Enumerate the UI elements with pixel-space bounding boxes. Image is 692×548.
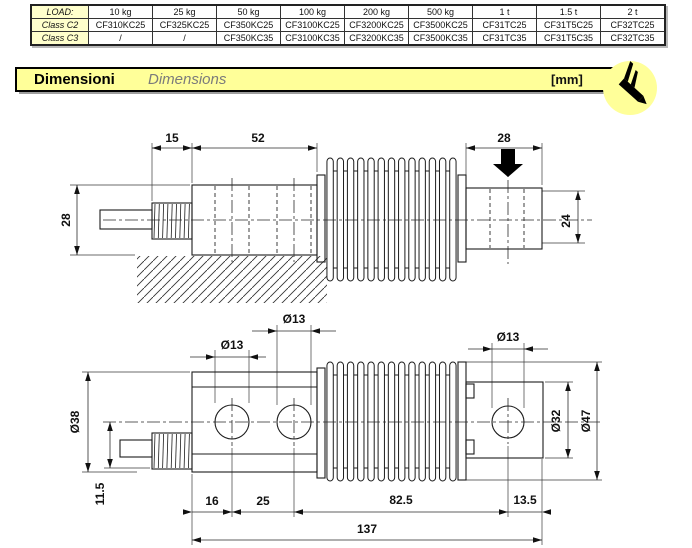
- bellows-finger: [419, 362, 425, 481]
- object-line: [466, 188, 542, 249]
- dim-end-length: 28: [497, 131, 511, 145]
- thread-line: [176, 434, 177, 468]
- bellows-finger: [419, 158, 425, 281]
- bellows-finger: [388, 362, 394, 481]
- arrowhead: [192, 537, 201, 543]
- bellows-finger: [378, 362, 384, 481]
- arrowhead: [565, 382, 571, 391]
- bellows-finger: [358, 362, 364, 481]
- bellows-finger: [347, 158, 353, 281]
- bellows-finger: [368, 158, 374, 281]
- dim-end-height: 24: [559, 214, 573, 228]
- dim-seg-13-5: 13.5: [513, 493, 537, 507]
- object-line: [317, 368, 325, 478]
- bellows-finger: [439, 362, 445, 481]
- bellows-finger: [327, 362, 333, 481]
- dim-cable-offset: 11.5: [93, 482, 107, 505]
- bellows: [327, 158, 456, 481]
- bellows-finger: [388, 158, 394, 281]
- bellows-finger: [409, 158, 415, 281]
- object-line: [317, 175, 325, 262]
- thread-line: [171, 434, 172, 468]
- dim-beam-length: 52: [251, 131, 265, 145]
- arrowhead: [74, 246, 80, 255]
- load-direction-arrow: [493, 149, 523, 177]
- arrowhead: [542, 509, 551, 515]
- dim-seg-82-5: 82.5: [389, 493, 413, 507]
- thread-line: [176, 204, 177, 238]
- dim-beam-height: 28: [59, 213, 73, 227]
- thread-line: [158, 204, 159, 238]
- arrowhead: [466, 145, 475, 151]
- arrowhead: [533, 145, 542, 151]
- bellows-finger: [358, 158, 364, 281]
- arrowhead: [294, 509, 303, 515]
- object-line: [100, 210, 152, 229]
- dim-total-length: 137: [357, 522, 377, 536]
- mounting-surface-hatch: [137, 256, 327, 303]
- thread-line: [158, 434, 159, 468]
- dim-hole2-diameter: Ø13: [283, 312, 306, 326]
- bellows-finger: [450, 158, 456, 281]
- arrowhead: [107, 459, 113, 468]
- arrowhead: [308, 145, 317, 151]
- bellows-finger: [450, 362, 456, 481]
- dim-end-hole-diameter: Ø13: [497, 330, 520, 344]
- arrowhead: [192, 145, 201, 151]
- thread-line: [163, 434, 164, 468]
- dim-body-width: Ø38: [68, 410, 82, 433]
- bellows-finger: [327, 158, 333, 281]
- bellows-finger: [337, 362, 343, 481]
- arrowhead: [183, 145, 192, 151]
- thread-line: [184, 204, 185, 238]
- bellows-finger: [399, 362, 405, 481]
- extension-lines: [70, 143, 602, 545]
- dim-seg-16: 16: [205, 494, 219, 508]
- arrowhead: [183, 509, 192, 515]
- thread-line: [171, 204, 172, 238]
- dim-seg-25: 25: [256, 494, 270, 508]
- arrowhead: [268, 328, 277, 334]
- object-outlines: [100, 175, 543, 480]
- thread-line: [163, 204, 164, 238]
- dim-boss-diameter: Ø32: [549, 409, 563, 432]
- arrowhead: [232, 509, 241, 515]
- arrowhead: [311, 328, 320, 334]
- object-line: [458, 175, 466, 262]
- object-line: [466, 440, 474, 454]
- arrowhead: [107, 422, 113, 431]
- section-title-english: Dimensions: [148, 71, 226, 88]
- thread-line: [180, 204, 181, 238]
- arrowhead: [575, 191, 581, 200]
- arrowhead: [483, 346, 492, 352]
- arrowhead: [85, 372, 91, 381]
- arrowhead: [74, 185, 80, 194]
- dim-gland-length: 15: [165, 131, 179, 145]
- bellows-finger: [409, 362, 415, 481]
- bellows-finger: [368, 362, 374, 481]
- thread-line: [188, 434, 189, 468]
- bellows-finger: [347, 362, 353, 481]
- thread-line: [167, 204, 168, 238]
- dim-hole1-diameter: Ø13: [221, 338, 244, 352]
- bellows-finger: [439, 158, 445, 281]
- thread-line: [154, 204, 155, 238]
- arrowhead: [223, 509, 232, 515]
- arrowhead: [533, 537, 542, 543]
- arrowhead: [206, 354, 215, 360]
- bellows-finger: [429, 158, 435, 281]
- section-title-italian: Dimensioni: [34, 71, 115, 88]
- thread-line: [184, 434, 185, 468]
- arrowhead: [524, 346, 533, 352]
- thread-line: [167, 434, 168, 468]
- arrowhead: [594, 362, 600, 371]
- section-banner: [16, 61, 661, 115]
- arrowhead: [594, 471, 600, 480]
- object-line: [466, 384, 474, 398]
- thread-line: [188, 204, 189, 238]
- bellows-finger: [337, 158, 343, 281]
- arrowhead: [152, 145, 161, 151]
- bellows-finger: [429, 362, 435, 481]
- bellows-finger: [399, 158, 405, 281]
- object-line: [466, 382, 543, 458]
- thread-line: [154, 434, 155, 468]
- unit-label: [mm]: [551, 72, 583, 87]
- dim-flange-diameter: Ø47: [579, 409, 593, 432]
- arrowhead: [85, 463, 91, 472]
- arrowhead: [249, 354, 258, 360]
- object-line: [192, 185, 317, 255]
- arrowhead: [575, 234, 581, 243]
- thread-line: [180, 434, 181, 468]
- object-line: [120, 440, 152, 457]
- object-line: [458, 362, 466, 480]
- bellows-finger: [378, 158, 384, 281]
- arrowhead: [565, 449, 571, 458]
- arrowhead: [499, 509, 508, 515]
